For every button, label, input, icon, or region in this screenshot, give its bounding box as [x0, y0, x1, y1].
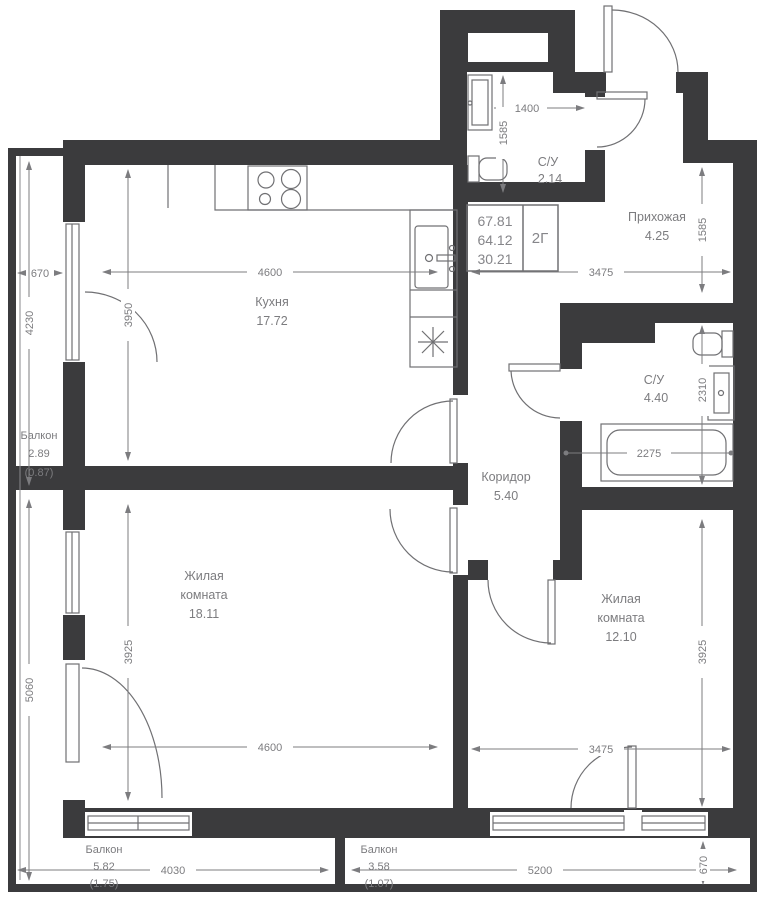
floor-plan-page: 4600 3475 3950 670 4230 5060 3925 4600 3…: [0, 0, 759, 900]
room-label-living-right-2: комната: [597, 611, 644, 625]
room-label-living-left-1: Жилая: [184, 569, 224, 583]
room-area-balcony-bl: 5.82: [93, 861, 114, 873]
water-heater-icon: [468, 75, 492, 130]
bathroom-sink-icon: [708, 366, 734, 420]
room-area-wc-big: 4.40: [644, 391, 668, 405]
room-label-living-left-2: комната: [180, 588, 227, 602]
room-area-balcony-left: 2.89: [28, 448, 49, 460]
living-right-door: [488, 580, 555, 644]
stove-icon: [248, 166, 307, 210]
room-coeff-balcony-bl: (1.75): [90, 878, 119, 890]
dim-balcony-br-width: 5200: [528, 865, 552, 877]
room-label-wc-big: С/У: [644, 373, 665, 387]
dim-living-right-height: 3925: [697, 640, 709, 664]
room-label-kitchen: Кухня: [255, 295, 288, 309]
fridge-asterisk-icon: [418, 327, 448, 357]
area-total: 67.81: [477, 213, 512, 229]
dim-balcony-br-depth: 670: [698, 856, 710, 874]
area-living: 64.12: [477, 232, 512, 248]
room-label-wc-small: С/У: [538, 155, 559, 169]
floor-plan-drawing: 4600 3475 3950 670 4230 5060 3925 4600 3…: [0, 0, 759, 900]
dim-balcony-bl-width: 4030: [161, 865, 185, 877]
dim-living-left-height: 3925: [123, 640, 135, 664]
kitchen-door: [391, 399, 457, 463]
toilet-large-icon: [693, 331, 733, 357]
room-area-wc-small: 2.14: [538, 172, 562, 186]
dim-balcony-left-height: 4230: [24, 311, 36, 335]
dim-wc-big-height: 2310: [697, 378, 709, 402]
area-rooms: 30.21: [477, 251, 512, 267]
room-coeff-balcony-br: (1.07): [365, 878, 394, 890]
room-label-corridor: Коридор: [481, 470, 530, 484]
room-label-living-right-1: Жилая: [601, 592, 641, 606]
room-label-balcony-bl: Балкон: [86, 844, 123, 856]
dim-balcony-left-width: 670: [31, 268, 49, 280]
balcony-parapets: [8, 148, 757, 892]
room-coeff-balcony-left: (0.87): [25, 467, 54, 479]
info-box: 67.81 64.12 30.21 2Г: [467, 205, 558, 271]
entry-door: [604, 6, 678, 72]
dim-living-left-width: 4600: [258, 742, 282, 754]
layout-code: 2Г: [532, 230, 548, 247]
room-area-hallway: 4.25: [645, 229, 669, 243]
room-label-hallway: Прихожая: [628, 210, 686, 224]
dim-bathtub-width: 2275: [637, 448, 661, 460]
room-label-balcony-left: Балкон: [21, 430, 58, 442]
dim-kitchen-height: 3950: [123, 303, 135, 327]
dim-hallway-height: 1585: [697, 218, 709, 242]
dim-left-lower-height: 5060: [24, 678, 36, 702]
kitchen-counter: [215, 165, 453, 210]
dim-kitchen-width: 4600: [258, 267, 282, 279]
dim-wc-small-height: 1585: [498, 121, 510, 145]
living-left-door: [390, 508, 457, 573]
wc-big-door: [509, 364, 560, 418]
room-label-balcony-br: Балкон: [361, 844, 398, 856]
room-area-corridor: 5.40: [494, 489, 518, 503]
room-area-living-right: 12.10: [605, 630, 636, 644]
dim-wc-small-width: 1400: [515, 103, 539, 115]
dim-living-right-width: 3475: [589, 744, 613, 756]
room-area-living-left: 18.11: [189, 607, 219, 621]
room-area-kitchen: 17.72: [256, 314, 287, 328]
toilet-small-icon: [468, 156, 507, 182]
dim-hallway-width: 3475: [589, 267, 613, 279]
room-area-balcony-br: 3.58: [368, 861, 389, 873]
